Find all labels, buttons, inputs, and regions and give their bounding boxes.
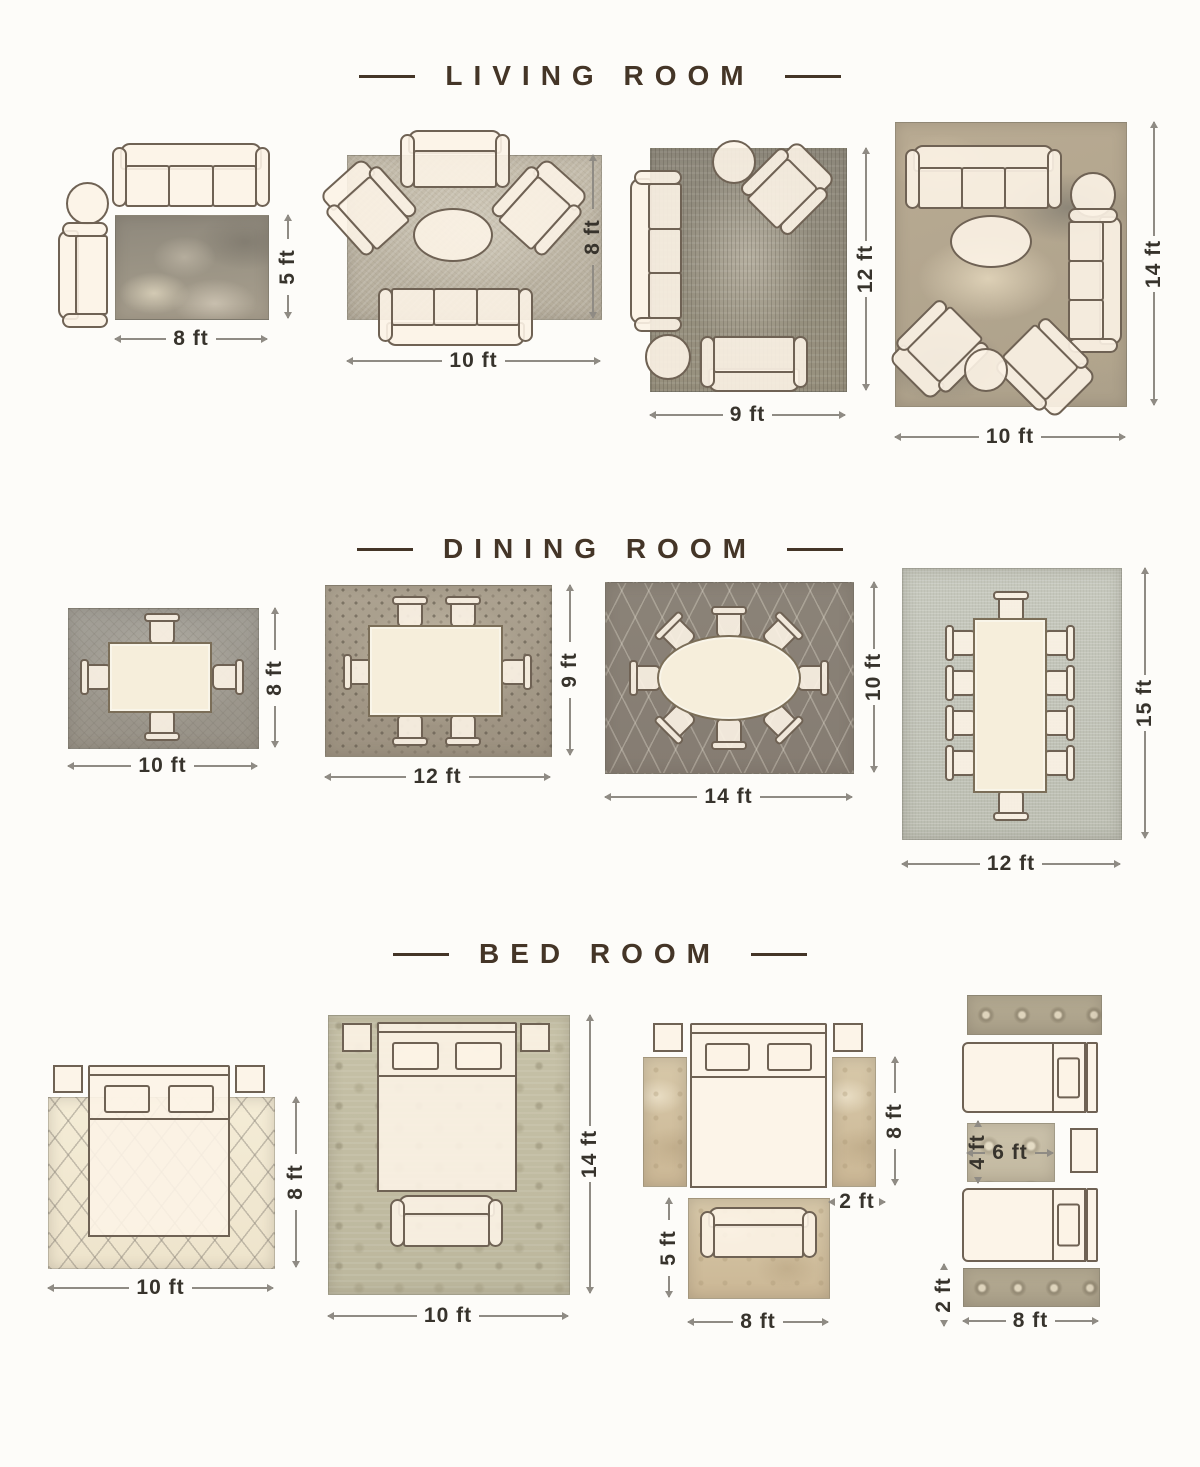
dimension-label: 8 ft — [284, 1164, 308, 1200]
sofa-cushions — [125, 165, 257, 207]
sofa — [112, 143, 270, 207]
section-title-bed-room: BED ROOM — [0, 938, 1200, 970]
dimension-label: 14 ft — [578, 1130, 602, 1178]
dimension-label: 8 ft — [166, 327, 216, 351]
dimension-label: 8 ft — [883, 1103, 907, 1139]
dimension-label: 5 ft — [657, 1230, 681, 1266]
cushion — [433, 288, 477, 326]
dimension-label: 14 ft — [697, 785, 759, 809]
cushion — [648, 183, 682, 230]
sofa-cushions — [391, 288, 520, 326]
nightstand — [653, 1023, 683, 1052]
dining-chair — [395, 596, 425, 628]
runner-rug — [967, 995, 1102, 1035]
dining-chair — [500, 657, 532, 687]
title-dash — [359, 75, 415, 78]
oval-coffee-table — [950, 215, 1032, 268]
dimension-line — [1144, 568, 1146, 675]
sofa-cushions — [648, 183, 682, 319]
rug-size-guide: LIVING ROOM 8 ft 5 ft 10 ft 8 ft 9 ft 12… — [0, 0, 1200, 1467]
title-dash — [787, 548, 843, 551]
dimension-label: 8 ft — [581, 219, 605, 255]
bed — [88, 1065, 230, 1237]
living-room-layout-2: 10 ft 8 ft — [335, 128, 615, 378]
bench — [390, 1195, 503, 1247]
cushion — [1068, 221, 1104, 262]
round-side-table — [66, 182, 109, 225]
section-title-text: DINING ROOM — [443, 533, 757, 565]
sofa-cushions — [713, 336, 795, 373]
dimension-line — [569, 698, 571, 755]
bed — [377, 1022, 517, 1192]
dining-chair — [1043, 628, 1075, 658]
dimension-line — [1153, 122, 1155, 236]
nightstand — [520, 1023, 550, 1052]
bed-room-layout-2: 10 ft 14 ft — [318, 1005, 608, 1335]
dimension-line — [772, 414, 845, 416]
pillow — [455, 1042, 501, 1070]
dimension-line — [592, 265, 594, 319]
dimension-label: 10 ft — [979, 425, 1041, 449]
dimension-label: 14 ft — [1142, 239, 1166, 287]
bed-body — [962, 1042, 1054, 1113]
dining-chair — [448, 714, 478, 746]
bed-body — [690, 1076, 827, 1188]
pillow — [168, 1085, 215, 1113]
nightstand — [833, 1023, 863, 1052]
height-dimension: 5 ft — [276, 215, 300, 318]
dimension-line — [668, 1198, 670, 1220]
bed — [690, 1023, 827, 1188]
twin-bed — [962, 1042, 1098, 1113]
dimension-line — [192, 1287, 273, 1289]
dimension-line — [1055, 1320, 1098, 1322]
width-dimension: 10 ft — [68, 755, 257, 777]
sofa-arm — [518, 288, 533, 342]
pillow — [705, 1043, 750, 1071]
width-dimension: 10 ft — [895, 426, 1125, 448]
dimension-line — [569, 585, 571, 642]
round-side-table — [645, 334, 691, 380]
height-dimension: 14 ft — [578, 1015, 602, 1293]
nightstand — [53, 1065, 83, 1093]
dining-table — [973, 618, 1047, 793]
pillow — [1057, 1204, 1080, 1247]
dimension-line — [829, 1201, 832, 1203]
dimension-line — [688, 1321, 733, 1323]
dimension-line — [605, 796, 697, 798]
dimension-label: 10 ft — [442, 349, 504, 373]
runner-width-dimension: 2 ft — [829, 1191, 885, 1213]
dining-chair — [714, 606, 744, 638]
height-dimension: 12 ft — [854, 148, 878, 390]
cushion — [75, 235, 108, 315]
sofa-arm — [793, 336, 808, 388]
dimension-label: 8 ft — [733, 1310, 783, 1334]
height-dimension: 14 ft — [1142, 122, 1166, 405]
dimension-label: 9 ft — [558, 652, 582, 688]
headboard — [1086, 1042, 1098, 1113]
cushion — [648, 272, 682, 319]
cushion — [1004, 167, 1049, 209]
dimension-line — [274, 608, 276, 650]
oval-coffee-table — [413, 208, 493, 262]
cushion — [403, 1213, 490, 1247]
dimension-line — [469, 776, 550, 778]
dimension-line — [894, 1149, 896, 1185]
sofa-cushions — [413, 150, 497, 188]
chair-seat — [716, 718, 742, 743]
bench — [700, 1207, 817, 1258]
dining-chair — [1043, 708, 1075, 738]
cushion — [391, 288, 435, 326]
sofa — [905, 145, 1062, 209]
dining-room-layout-4: 12 ft 15 ft — [895, 565, 1175, 885]
cushion — [713, 1224, 804, 1258]
section-title-text: BED ROOM — [479, 938, 721, 970]
nightstand — [342, 1023, 372, 1052]
sofa-cushions — [918, 167, 1049, 209]
dining-table — [368, 625, 503, 717]
nightstand — [1070, 1128, 1098, 1173]
bed-body — [377, 1075, 517, 1192]
dimension-line — [760, 796, 852, 798]
dimension-line — [274, 706, 276, 748]
dining-chair — [714, 718, 744, 750]
dimension-line — [1153, 292, 1155, 406]
dining-chair — [1043, 668, 1075, 698]
dimension-line — [894, 1057, 896, 1093]
height-dimension: 8 ft — [284, 1097, 308, 1267]
runner-rug — [832, 1057, 876, 1187]
dimension-line — [347, 360, 442, 362]
chair-seat — [212, 664, 237, 690]
cushion — [125, 165, 170, 207]
dimension-line — [1041, 436, 1125, 438]
dimension-line — [216, 338, 267, 340]
dimension-label: 12 ft — [980, 852, 1042, 876]
foot-rug-height-dimension: 5 ft — [657, 1198, 681, 1297]
bench-cushions — [713, 1224, 804, 1258]
bed-room-layout-3: 8 ft 2 ft 5 ft 8 ft — [635, 1015, 915, 1335]
dining-chair — [147, 613, 177, 645]
dimension-line — [295, 1210, 297, 1267]
dimension-line — [287, 215, 289, 239]
dimension-label: 9 ft — [723, 403, 773, 427]
dimension-line — [325, 776, 406, 778]
pillow — [104, 1085, 151, 1113]
dimension-line — [589, 1182, 591, 1293]
cushion — [918, 167, 963, 209]
sofa — [630, 170, 682, 332]
section-title-text: LIVING ROOM — [445, 60, 754, 92]
loveseat — [400, 130, 510, 188]
dimension-label: 8 ft — [1006, 1309, 1056, 1333]
dining-chair — [996, 789, 1026, 821]
section-title-living-room: LIVING ROOM — [0, 60, 1200, 92]
headboard — [1086, 1188, 1098, 1262]
bench-arm — [488, 1199, 503, 1247]
dining-table — [108, 642, 212, 713]
sofa-cushions — [75, 235, 108, 315]
dimension-label: 15 ft — [1133, 679, 1157, 727]
cushion — [648, 228, 682, 275]
sofa — [378, 288, 533, 346]
cushion — [168, 165, 213, 207]
dimension-label: 6 ft — [985, 1141, 1035, 1165]
runner-rug — [643, 1057, 687, 1187]
bench-arm — [802, 1211, 817, 1258]
dimension-label: 10 ft — [129, 1276, 191, 1300]
dimension-line — [48, 1287, 129, 1289]
dimension-label: 2 ft — [932, 1277, 956, 1313]
dimension-label: 8 ft — [263, 660, 287, 696]
dimension-line — [115, 338, 166, 340]
dimension-line — [1035, 1152, 1053, 1154]
pillow — [392, 1042, 438, 1070]
width-dimension: 12 ft — [902, 853, 1120, 875]
area-rug — [115, 215, 269, 320]
dimension-line — [873, 705, 875, 772]
sofa-arm — [495, 134, 510, 188]
dining-room-layout-1: 10 ft 8 ft — [55, 595, 305, 785]
nightstand — [235, 1065, 265, 1093]
dimension-line — [194, 765, 257, 767]
section-title-dining-room: DINING ROOM — [0, 533, 1200, 565]
cushion — [961, 167, 1006, 209]
dimension-line — [967, 1152, 985, 1154]
pillow — [767, 1043, 812, 1071]
dimension-label: 12 ft — [854, 245, 878, 293]
title-dash — [357, 548, 413, 551]
loveseat — [700, 336, 808, 392]
dining-chair — [147, 709, 177, 741]
sofa-arm — [634, 317, 682, 332]
dimension-line — [963, 1320, 1006, 1322]
dimension-line — [865, 297, 867, 390]
title-dash — [751, 953, 807, 956]
dimension-line — [873, 582, 875, 649]
width-dimension: 10 ft — [347, 350, 600, 372]
dimension-line — [783, 1321, 828, 1323]
dimension-label: 10 ft — [862, 653, 886, 701]
runner-rug — [963, 1268, 1100, 1307]
foot-rug-width-dimension: 8 ft — [688, 1311, 828, 1333]
dimension-line — [589, 1015, 591, 1126]
dimension-line — [977, 1180, 979, 1183]
dining-chair — [1043, 748, 1075, 778]
dimension-label: 5 ft — [276, 249, 300, 285]
dimension-line — [668, 1276, 670, 1298]
sofa — [1068, 208, 1122, 353]
sofa-arm — [255, 147, 270, 207]
dimension-line — [865, 148, 867, 241]
sofa-arm — [1047, 149, 1062, 209]
living-room-layout-3: 9 ft 12 ft — [630, 138, 890, 438]
chair-seat — [500, 659, 525, 685]
dimension-label: 2 ft — [832, 1190, 882, 1214]
dimension-line — [943, 1323, 945, 1326]
chair-seat — [397, 714, 423, 739]
cushion — [476, 288, 520, 326]
dining-chair — [212, 662, 244, 692]
bench-cushions — [403, 1213, 490, 1247]
width-dimension: 9 ft — [650, 404, 845, 426]
pillow — [1057, 1057, 1080, 1098]
dimension-line — [505, 360, 600, 362]
runner-height-dimension: 2 ft — [932, 1264, 956, 1308]
cushion — [413, 150, 497, 188]
title-dash — [785, 75, 841, 78]
dimension-line — [328, 1315, 417, 1317]
oval-dining-table — [657, 635, 801, 721]
dining-room-layout-3: 14 ft 10 ft — [598, 572, 888, 812]
dimension-label: 10 ft — [131, 754, 193, 778]
width-dimension: 10 ft — [48, 1277, 273, 1299]
dimension-line — [895, 436, 979, 438]
width-dimension: 14 ft — [605, 786, 852, 808]
cushion — [212, 165, 257, 207]
height-dimension: 8 ft — [263, 608, 287, 747]
height-dimension: 9 ft — [558, 585, 582, 755]
sofa-arm — [62, 313, 108, 328]
height-dimension: 15 ft — [1133, 568, 1157, 838]
dimension-line — [68, 765, 131, 767]
dining-room-layout-2: 12 ft 9 ft — [318, 578, 588, 803]
bed-body — [88, 1118, 230, 1237]
dimension-line — [287, 295, 289, 319]
height-dimension: 8 ft — [581, 155, 605, 318]
dining-chair — [797, 663, 829, 693]
living-room-layout-4: 10 ft 14 ft — [890, 118, 1180, 458]
dimension-line — [902, 863, 980, 865]
dimension-line — [882, 1201, 885, 1203]
cushion — [713, 336, 795, 373]
dimension-label: 12 ft — [406, 765, 468, 789]
bed-room-layout-1: 10 ft 8 ft — [40, 1055, 320, 1305]
cushion — [1068, 260, 1104, 301]
sofa-cushions — [1068, 221, 1104, 340]
bed-body — [962, 1188, 1054, 1262]
width-dimension: 8 ft — [115, 328, 267, 350]
runner-height-dimension: 8 ft — [883, 1057, 907, 1185]
cushion — [1068, 299, 1104, 340]
twin-bed — [962, 1188, 1098, 1262]
dimension-line — [1144, 731, 1146, 838]
dimension-line — [479, 1315, 568, 1317]
chair-seat — [450, 714, 476, 739]
round-side-table — [964, 348, 1008, 392]
dimension-line — [592, 155, 594, 209]
dimension-line — [295, 1097, 297, 1154]
height-dimension: 10 ft — [862, 582, 886, 772]
width-dimension: 10 ft — [328, 1305, 568, 1327]
dimension-line — [650, 414, 723, 416]
width-dimension: 12 ft — [325, 766, 550, 788]
bed-room-layout-4: 4 ft 6 ft 2 ft 8 ft — [930, 990, 1200, 1340]
runner-width-dimension: 8 ft — [963, 1310, 1098, 1332]
dimension-line — [1042, 863, 1120, 865]
dining-chair — [395, 714, 425, 746]
living-room-layout-1: 8 ft 5 ft — [50, 140, 330, 360]
dining-chair — [448, 596, 478, 628]
dimension-label: 10 ft — [417, 1304, 479, 1328]
mid-rug-width-dimension: 6 ft — [967, 1142, 1053, 1164]
title-dash — [393, 953, 449, 956]
chaise — [58, 222, 108, 328]
